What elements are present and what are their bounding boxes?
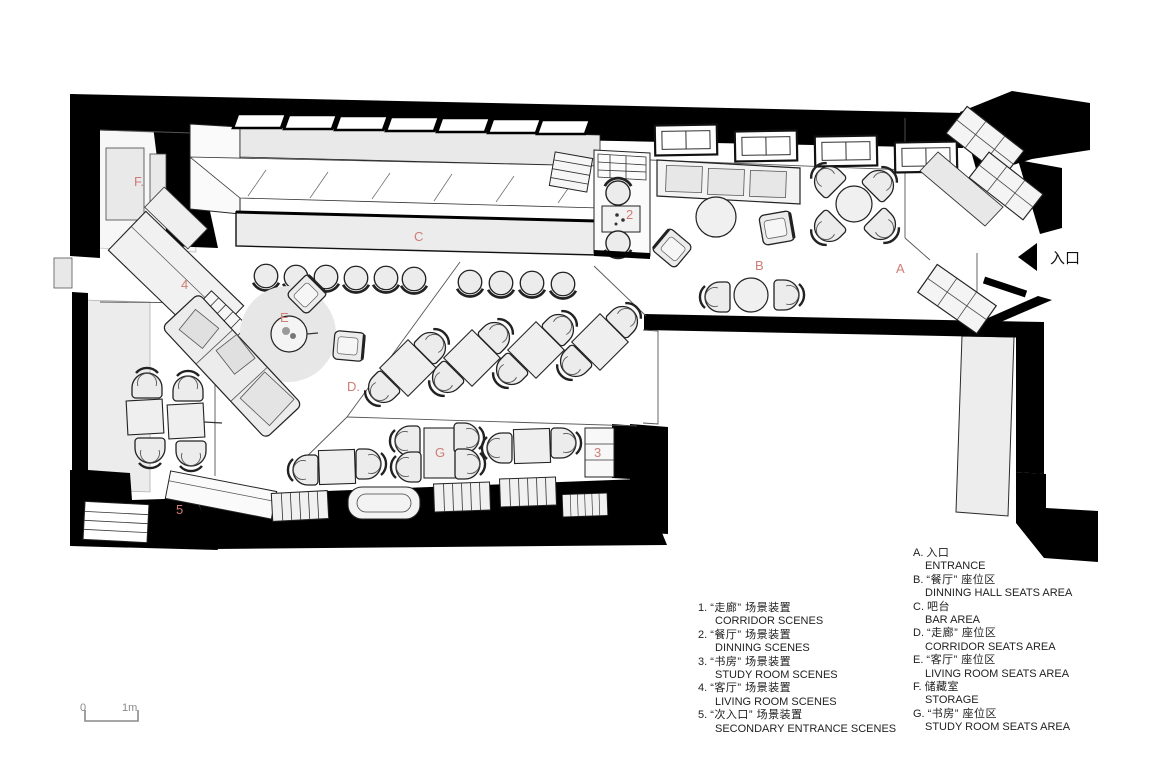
plan-label-a: A	[896, 261, 905, 276]
plan-label-2: 2	[626, 207, 633, 222]
plan-label-4: 4	[181, 277, 188, 292]
bench-sofa	[657, 160, 800, 204]
legend-item-a: A.入口 ENTRANCE	[913, 547, 1143, 574]
plan-label-b: B	[755, 258, 764, 273]
legend-item-3: 3.“书房” 场景装置 STUDY ROOM SCENES	[698, 656, 908, 683]
plan-label-f: F.	[134, 174, 144, 189]
legend-item-2: 2.“餐厅” 场景装置 DINNING SCENES	[698, 629, 908, 656]
plan-label-c: C	[414, 229, 423, 244]
plan-label-d: D.	[347, 379, 360, 394]
four-top-round-table	[805, 157, 906, 252]
plan-label-5: 5	[176, 502, 183, 517]
legend-item-c: C.吧台 BAR AREA	[913, 601, 1143, 628]
plan-label-3: 3	[594, 445, 601, 460]
entrance-arrow-icon	[1018, 243, 1037, 271]
stairs	[83, 501, 149, 542]
bar-area	[190, 114, 600, 255]
legend-item-g: G.“书房” 座位区 STUDY ROOM SEATS AREA	[913, 708, 1143, 735]
scene-installation-2	[594, 150, 650, 259]
legend-item-e: E.“客厅” 座位区 LIVING ROOM SEATS AREA	[913, 654, 1143, 681]
plan-label-g: G	[435, 445, 445, 460]
corridor-seats-d	[359, 297, 648, 413]
legend-numbered: 1.“走廊” 场景装置 CORRIDOR SCENES 2.“餐厅” 场景装置 …	[698, 602, 908, 736]
legend-item-d: D.“走廊” 座位区 CORRIDOR SEATS AREA	[913, 627, 1143, 654]
scale-bar: 0 1m	[80, 702, 138, 721]
dining-hall-b	[651, 124, 957, 312]
wall-niche	[54, 258, 72, 288]
plan-label-e: E	[280, 310, 289, 325]
display-tray	[348, 487, 420, 519]
legend-item-f: F.储藏室 STORAGE	[913, 681, 1143, 708]
legend-lettered: A.入口 ENTRANCE B.“餐厅” 座位区 DINNING HALL SE…	[913, 547, 1143, 735]
study-seats-g	[288, 423, 614, 485]
bar-ladder-shelf	[549, 152, 592, 192]
living-room-side-tables	[126, 368, 222, 471]
legend-item-b: B.“餐厅” 座位区 DINNING HALL SEATS AREA	[913, 574, 1143, 601]
legend-item-4: 4.“客厅” 场景装置 LIVING ROOM SCENES	[698, 682, 908, 709]
page: 入口	[0, 0, 1152, 768]
round-table	[271, 316, 307, 352]
entrance-marker: 入口	[1018, 243, 1080, 271]
legend-item-5: 5.“次入口” 场景装置 SECONDARY ENTRANCE SCENES	[698, 709, 908, 736]
two-top-round-table	[700, 278, 804, 312]
round-table	[696, 197, 736, 237]
scale-one-meter: 1m	[122, 702, 137, 714]
entrance-label: 入口	[1050, 250, 1080, 267]
legend-item-1: 1.“走廊” 场景装置 CORRIDOR SCENES	[698, 602, 908, 629]
